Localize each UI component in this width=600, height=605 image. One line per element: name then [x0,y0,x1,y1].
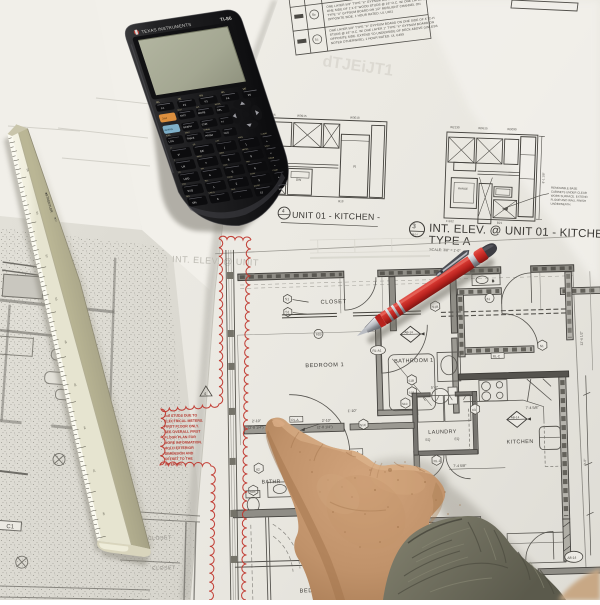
svg-text:AB-14: AB-14 [511,415,520,419]
svg-text:7'-4 5/8": 7'-4 5/8" [526,406,540,410]
svg-text:S1B: S1B [408,379,414,383]
svg-text:C1: C1 [6,524,15,531]
svg-text:61: 61 [487,297,491,301]
svg-text:S1: S1 [285,297,289,301]
svg-text:W3030: W3030 [507,127,517,131]
svg-text:LAUNDRY: LAUNDRY [428,429,457,436]
svg-text:4: 4 [282,209,285,215]
svg-text:7'-4 5/8": 7'-4 5/8" [453,464,467,468]
svg-text:1'-10": 1'-10" [348,409,358,413]
svg-text:S1C: S1C [360,423,367,427]
svg-text:(2'-8 1/4"): (2'-8 1/4") [248,425,264,429]
svg-text:EQ: EQ [425,438,430,442]
svg-text:5'-2": 5'-2" [431,386,439,390]
svg-text:SEE OVERALL FIRST: SEE OVERALL FIRST [164,430,201,435]
svg-text:3: 3 [412,223,416,230]
svg-text:B: B [492,279,494,283]
svg-text:RL-C: RL-C [434,459,442,463]
svg-text:9'-0": 9'-0" [583,458,587,466]
svg-text:2'-10": 2'-10" [322,419,332,423]
svg-text:RL-A: RL-A [291,418,299,422]
svg-text:2x8 STUDS DUE TO: 2x8 STUDS DUE TO [164,413,198,418]
svg-text:HOLD EXTERIOR: HOLD EXTERIOR [165,446,195,451]
svg-text:UNDERNEATH.: UNDERNEATH. [550,202,571,207]
svg-text:S1C: S1C [402,402,409,406]
svg-text:8'-1 1/8": 8'-1 1/8" [541,172,545,183]
svg-text:INTERIOR.: INTERIOR. [165,462,183,466]
svg-text:W3615: W3615 [478,126,488,130]
svg-text:ELECTRICAL METERS.: ELECTRICAL METERS. [164,419,203,424]
svg-text:AB-14: AB-14 [404,330,413,334]
svg-text:5b: 5b [312,13,316,17]
svg-text:TYPE A: TYPE A [428,235,470,248]
svg-text:RANGE: RANGE [458,186,468,190]
svg-text:(2'-8 1/4"): (2'-8 1/4") [317,425,333,429]
svg-text:OFFSET TO THE: OFFSET TO THE [165,457,194,461]
svg-text:2'-10": 2'-10" [252,419,262,423]
svg-text:DW: DW [296,178,301,182]
svg-text:S1: S1 [540,344,544,348]
svg-text:CLOSET: CLOSET [321,299,347,306]
svg-text:EQ: EQ [454,437,459,441]
svg-text:FLOOR PLAN FOR: FLOOR PLAN FOR [164,435,196,440]
svg-text:KITCHEN: KITCHEN [506,439,533,446]
svg-text:A8-14: A8-14 [567,556,576,560]
svg-text:CLOSET: CLOSET [152,565,176,572]
svg-text:B18: B18 [338,199,344,203]
svg-text:RL-A1: RL-A1 [372,349,381,353]
svg-text:W3018: W3018 [350,116,360,120]
svg-text:63: 63 [472,408,476,412]
svg-text:DIMENSION AND: DIMENSION AND [165,451,194,456]
svg-text:S1B: S1B [432,305,438,309]
svg-text:12'-6 1/2": 12'-6 1/2" [579,330,583,345]
svg-text:S1: S1 [285,310,289,314]
svg-text:W2130: W2130 [450,125,460,129]
svg-text:FIRST FLOOR ONLY.: FIRST FLOOR ONLY. [164,424,199,429]
svg-text:BEDROOM 1: BEDROOM 1 [305,362,344,369]
svg-text:BATHROOM 1: BATHROOM 1 [394,358,433,365]
svg-text:MORE INFORMATION.: MORE INFORMATION. [164,440,201,445]
svg-text:62: 62 [256,468,260,472]
svg-text:A8-14: A8-14 [411,233,418,236]
svg-text:RL-C: RL-C [493,354,501,358]
svg-text:W3915: W3915 [297,114,307,118]
